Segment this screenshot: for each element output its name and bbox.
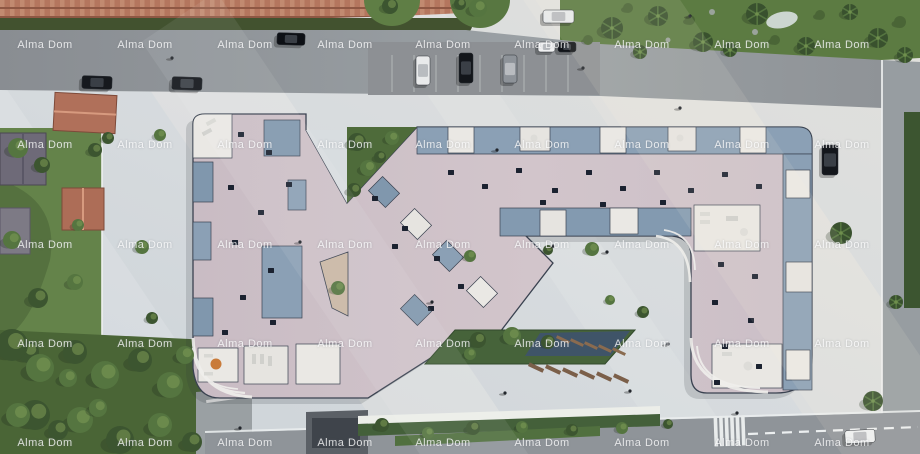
car <box>274 32 306 48</box>
house-red-roof-1 <box>53 92 117 133</box>
hedge-right <box>904 112 920 308</box>
car <box>79 75 113 92</box>
car <box>413 56 430 88</box>
aerial-architectural-render: Alma DomAlma DomAlma DomAlma DomAlma Dom… <box>0 0 920 454</box>
scene-render <box>0 0 920 454</box>
car <box>819 145 838 178</box>
car <box>500 55 517 86</box>
car <box>456 53 473 86</box>
